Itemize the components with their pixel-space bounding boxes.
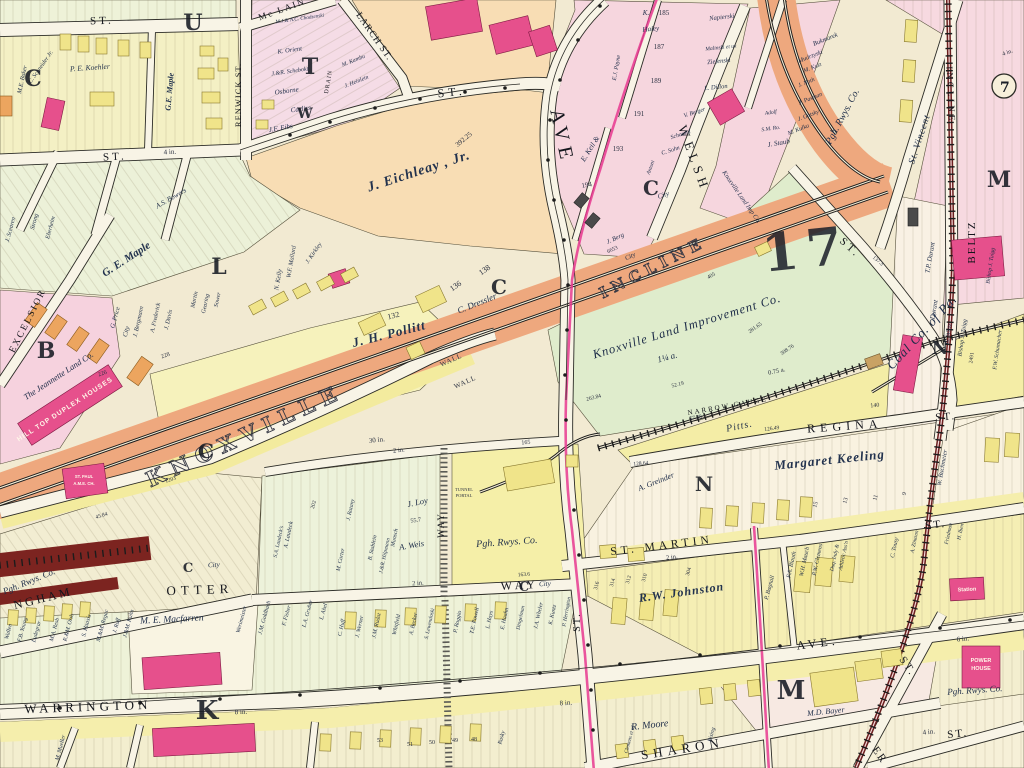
building — [200, 46, 214, 56]
map-label: L — [211, 254, 226, 280]
building — [435, 606, 447, 623]
trolley-pole-dot — [618, 662, 622, 666]
building — [699, 508, 712, 529]
map-label: M — [987, 167, 1011, 193]
building — [1004, 433, 1019, 458]
map-label: ST. — [103, 150, 127, 163]
trolley-pole-dot — [582, 598, 586, 602]
trolley-pole-dot — [938, 626, 942, 630]
building — [776, 500, 789, 521]
map-label: 53 — [377, 738, 383, 744]
map-label: POWER — [971, 658, 992, 664]
map-label: OTTER — [166, 581, 233, 598]
trolley-pole-dot — [586, 643, 590, 647]
map-label: 50 — [429, 740, 435, 746]
map-label: C — [643, 176, 659, 200]
building — [350, 732, 362, 749]
building — [855, 658, 884, 681]
map-label: 140 — [870, 403, 879, 410]
building — [0, 96, 12, 116]
map-label: C — [519, 580, 529, 595]
building — [723, 683, 737, 700]
map-label: 8 in. — [235, 708, 248, 716]
map-label: City — [539, 580, 552, 589]
trolley-pole-dot — [858, 635, 862, 639]
map-label: City — [208, 561, 221, 570]
trolley-pole-dot — [698, 653, 702, 657]
map-label: 6 in. — [956, 634, 969, 643]
building — [908, 208, 918, 226]
trolley-pole-dot — [218, 697, 222, 701]
map-label: C — [491, 275, 507, 299]
trolley-pole-dot — [373, 106, 377, 110]
map-label: 185 — [659, 9, 670, 17]
map-label: 193 — [613, 145, 624, 153]
trolley-pole-dot — [558, 78, 562, 82]
map-label: U — [183, 10, 202, 36]
brick-building — [152, 723, 255, 756]
trolley-pole-dot — [328, 120, 332, 124]
map-label: WAY — [436, 512, 446, 538]
building — [202, 92, 220, 103]
atlas-map[interactable]: ST.ST.4 in.RENWICK ST.Mc LAINLARCH ST.ST… — [0, 0, 1024, 768]
trolley-pole-dot — [562, 238, 566, 242]
building — [902, 60, 916, 83]
map-label: N — [932, 338, 948, 359]
building — [320, 734, 332, 751]
trolley-pole-dot — [288, 133, 292, 137]
brick-building — [142, 652, 222, 689]
trolley-pole-dot — [378, 686, 382, 690]
building — [899, 100, 913, 123]
map-label: Haley — [641, 24, 660, 34]
building — [751, 503, 764, 524]
trolley-pole-dot — [598, 4, 602, 8]
trolley-pole-dot — [566, 283, 570, 287]
building — [904, 20, 918, 43]
trolley-pole-dot — [1008, 618, 1012, 622]
map-label: ST. — [925, 518, 947, 532]
building — [440, 726, 452, 743]
map-label: ST. PAUL — [75, 474, 94, 479]
building — [747, 679, 761, 696]
map-label: ST. — [935, 410, 957, 424]
building — [566, 455, 578, 467]
trolley-pole-dot — [458, 679, 462, 683]
map-label: ST. — [437, 84, 466, 101]
building — [198, 68, 214, 79]
map-label: T — [302, 54, 319, 80]
building — [218, 58, 228, 71]
trolley-pole-dot — [298, 693, 302, 697]
map-label: C — [198, 439, 214, 463]
building — [810, 667, 858, 707]
map-label: RENWICK ST. — [233, 63, 243, 127]
building — [8, 610, 19, 626]
map-label: BELTZ — [966, 220, 978, 263]
trolley-pole-dot — [572, 508, 576, 512]
map-label: TUNNEL — [455, 487, 473, 492]
building — [256, 120, 268, 129]
map-label: HOUSE — [971, 666, 991, 672]
brick-building — [951, 236, 1004, 280]
building — [799, 497, 812, 518]
building — [140, 42, 151, 58]
map-label: 2 in. — [393, 446, 406, 454]
map-label: 189 — [651, 77, 662, 85]
map-label: B — [37, 338, 56, 364]
trolley-pole-dot — [778, 644, 782, 648]
trolley-pole-dot — [565, 328, 569, 332]
trolley-pole-dot — [546, 158, 550, 162]
trolley-pole-dot — [418, 97, 422, 101]
map-label: 48 — [471, 737, 477, 743]
map-label: W — [296, 106, 313, 122]
building — [44, 606, 55, 622]
map-label: 49 — [452, 738, 458, 744]
trolley-pole-dot — [577, 553, 581, 557]
map-label: K — [196, 696, 220, 726]
building — [611, 597, 627, 624]
building — [262, 100, 274, 109]
building — [60, 34, 71, 50]
map-label: 8 in. — [559, 699, 572, 708]
map-label: A.M.E. CH. — [73, 481, 94, 486]
map-label: PORTAL — [456, 493, 473, 498]
map-label: 191 — [634, 110, 645, 118]
map-label: 2 in. — [666, 553, 679, 561]
map-svg: ST.ST.4 in.RENWICK ST.Mc LAINLARCH ST.ST… — [0, 0, 1024, 768]
map-label: Station — [957, 586, 977, 593]
trolley-pole-dot — [552, 198, 556, 202]
map-label: ST. — [572, 612, 583, 631]
building — [984, 438, 999, 463]
building — [96, 38, 107, 54]
trolley-pole-dot — [563, 373, 567, 377]
trolley-pole-dot — [538, 671, 542, 675]
map-label: 187 — [654, 43, 665, 51]
map-label: ST. — [90, 15, 114, 28]
building — [118, 40, 129, 56]
map-label: M — [777, 676, 806, 706]
plate-number-17: 17 — [759, 215, 853, 285]
plate-number-7: 7 — [1000, 80, 1010, 96]
map-label: 30 in. — [368, 435, 385, 445]
map-label: 51 — [407, 742, 413, 748]
map-label: N — [695, 472, 713, 496]
trolley-pole-dot — [591, 728, 595, 732]
building — [725, 506, 738, 527]
map-label: C — [24, 66, 42, 92]
map-label: 163.6 — [518, 572, 531, 579]
trolley-pole-dot — [503, 86, 507, 90]
map-label: ST. — [947, 727, 969, 741]
map-label: C — [183, 561, 193, 576]
building — [90, 92, 114, 106]
trolley-pole-dot — [564, 418, 568, 422]
map-label: 2 in. — [412, 580, 424, 588]
map-label: 165 — [521, 440, 530, 447]
map-label: K. — [642, 9, 650, 17]
trolley-pole-dot — [589, 688, 593, 692]
building — [699, 687, 713, 704]
building — [78, 36, 89, 52]
map-label: 4 in. — [163, 148, 176, 157]
trolley-pole-dot — [576, 38, 580, 42]
building — [206, 118, 222, 129]
map-label: 4 in. — [922, 727, 935, 736]
